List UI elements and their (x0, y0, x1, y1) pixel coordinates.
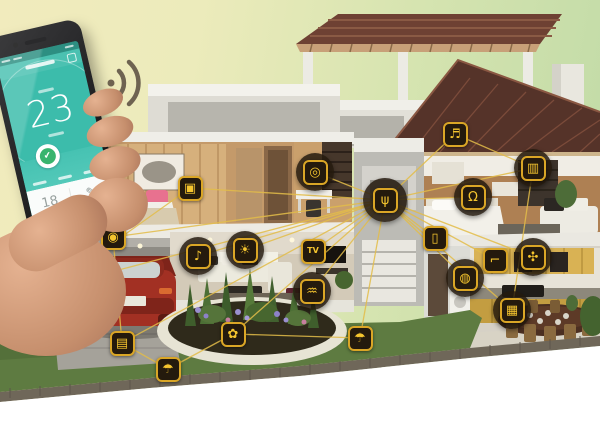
audio-player-icon-glyph: ♪ (194, 250, 202, 263)
lawn-sprinkler-icon-glyph: ☂ (162, 363, 174, 376)
wifi-icon-glyph: ♒ (306, 285, 318, 298)
lawn-sprinkler-icon-glyph: ☂ (354, 332, 366, 345)
garage-door-icon: ▤ (110, 331, 135, 356)
wifi-icon: ♒ (300, 279, 325, 304)
study-camera-icon: ◎ (303, 160, 328, 185)
washing-machine-icon-node: ◍ (446, 259, 484, 297)
water-faucet-icon-node: ⌐ (482, 247, 508, 273)
doorbell-icon: ♬ (443, 122, 468, 147)
smart-curtain-icon: ▥ (521, 156, 546, 181)
smart-tv-icon-glyph: TV (307, 247, 319, 255)
garage-door-icon-node: ▤ (109, 330, 135, 356)
smart-curtain-icon-glyph: ▥ (527, 162, 539, 175)
lawn-sprinkler-icon: ☂ (156, 357, 181, 382)
bedroom-camera-icon: ▣ (178, 176, 203, 201)
audio-player-icon: ♪ (186, 244, 211, 269)
exhaust-fan-icon: ✣ (521, 245, 546, 270)
kitchen-stove-icon: ▦ (500, 298, 525, 323)
lawn-sprinkler-icon-node: ☂ (347, 325, 373, 351)
phone-camera-dot (13, 42, 19, 48)
smart-home-scene: ◉⚡▤☂✿☂♪☀TV♒▣◎ψ▯♬▥Ω✣⌐◍▦ 23 (0, 0, 600, 426)
smart-curtain-icon-node: ▥ (514, 149, 552, 187)
washing-machine-icon-glyph: ◍ (459, 272, 470, 285)
smart-hub-icon: ψ (373, 188, 398, 213)
headset-icon-glyph: Ω (468, 191, 478, 204)
study-camera-icon-glyph: ◎ (309, 166, 320, 179)
bedroom-camera-icon-glyph: ▣ (184, 182, 196, 195)
phone-speaker (24, 37, 46, 46)
lawn-sprinkler-icon: ☂ (348, 326, 373, 351)
smart-tv-icon-node: TV (300, 238, 326, 264)
garden-irrigation-icon-node: ✿ (220, 321, 246, 347)
kitchen-stove-icon-glyph: ▦ (506, 304, 518, 317)
headset-icon: Ω (461, 185, 486, 210)
garden-irrigation-icon: ✿ (221, 322, 246, 347)
study-camera-icon-node: ◎ (296, 153, 334, 191)
wall-switch-icon-node: ▯ (422, 225, 448, 251)
audio-player-icon-node: ♪ (179, 237, 217, 275)
exhaust-fan-icon-node: ✣ (514, 238, 552, 276)
wall-switch-icon: ▯ (423, 226, 448, 251)
bedroom-camera-icon-node: ▣ (177, 175, 203, 201)
exhaust-fan-icon-glyph: ✣ (528, 251, 539, 264)
wall-switch-icon-glyph: ▯ (431, 232, 438, 245)
lawn-sprinkler-icon-node: ☂ (155, 356, 181, 382)
smart-hub-icon-node: ψ (363, 178, 407, 222)
washing-machine-icon: ◍ (453, 266, 478, 291)
garden-irrigation-icon-glyph: ✿ (228, 328, 239, 341)
garage-camera-icon-glyph: ◉ (107, 231, 118, 244)
smart-tv-icon: TV (301, 239, 326, 264)
headset-icon-node: Ω (454, 178, 492, 216)
smart-light-icon-node: ☀ (226, 231, 264, 269)
doorbell-icon-glyph: ♬ (449, 128, 461, 141)
smart-hub-icon-glyph: ψ (381, 194, 390, 207)
kitchen-stove-icon-node: ▦ (493, 291, 531, 329)
garage-door-icon-glyph: ▤ (116, 337, 128, 350)
wifi-icon-node: ♒ (293, 272, 331, 310)
water-faucet-icon: ⌐ (483, 248, 508, 273)
doorbell-icon-node: ♬ (442, 121, 468, 147)
smart-light-icon-glyph: ☀ (239, 244, 251, 257)
water-faucet-icon-glyph: ⌐ (490, 254, 501, 267)
check-icon: ✔ (38, 147, 57, 166)
smart-light-icon: ☀ (233, 238, 258, 263)
